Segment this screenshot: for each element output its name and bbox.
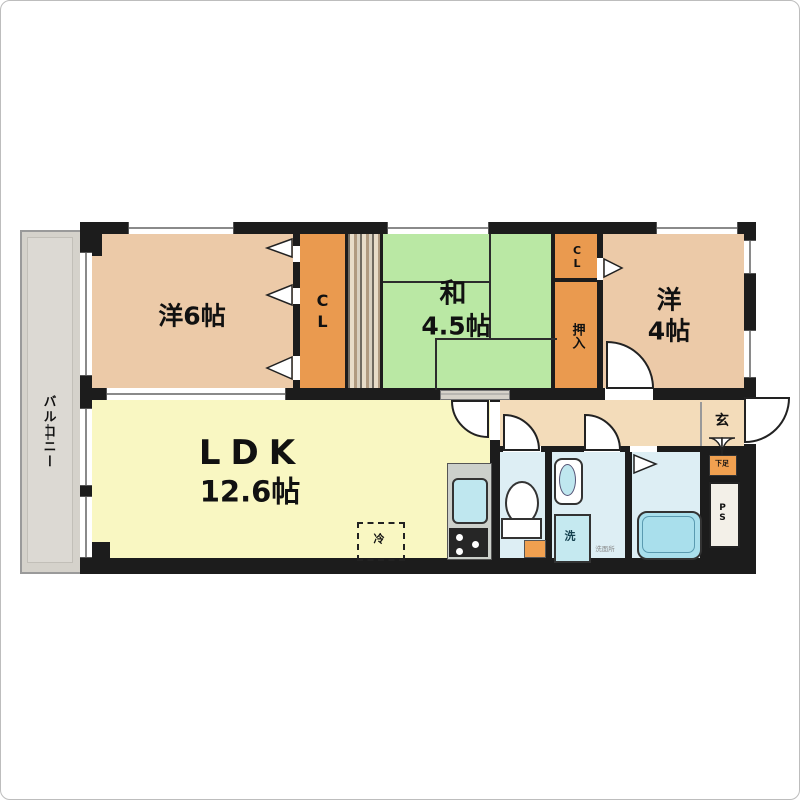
door-arc-toilet bbox=[502, 414, 540, 451]
kitchen-sink bbox=[452, 478, 488, 524]
door-arc-ldk bbox=[450, 400, 490, 438]
window-top-western4 bbox=[656, 222, 738, 234]
folding-door-closet1-c bbox=[266, 356, 293, 380]
sliding-window-western6-ldk bbox=[106, 388, 286, 400]
wall-japanese-oshiire bbox=[551, 234, 555, 388]
window-left-western6 bbox=[80, 252, 92, 376]
wall-toilet-washroom bbox=[545, 452, 552, 558]
stove-burner-1 bbox=[456, 534, 463, 541]
door-gap-ldk bbox=[490, 402, 500, 440]
door-gap-closet1-c bbox=[293, 356, 300, 380]
shoe-cabinet-door-arcs bbox=[708, 436, 736, 456]
oshiire-label: 押入 bbox=[571, 323, 584, 349]
stove-burner-2 bbox=[472, 541, 479, 548]
wall-washroom-bathroom bbox=[625, 452, 632, 558]
pipe-space-label: PS bbox=[718, 503, 727, 523]
ldk-label-2: 12.6帖 bbox=[200, 478, 301, 507]
window-top-japanese bbox=[387, 222, 489, 234]
refrigerator-label: 冷 bbox=[374, 534, 385, 545]
tatami-line-4 bbox=[435, 338, 437, 390]
wall-fusuma-right bbox=[380, 234, 383, 388]
door-arc-western4 bbox=[605, 341, 655, 389]
window-left-ldk-1 bbox=[80, 408, 92, 486]
folding-door-closet2 bbox=[603, 258, 624, 278]
folding-door-closet1-b bbox=[266, 284, 293, 306]
japanese-room-label-2: 4.5帖 bbox=[421, 314, 490, 339]
balcony-label: バルコニー bbox=[42, 395, 55, 470]
door-arc-entrance bbox=[744, 396, 792, 444]
western4-label-1: 洋 bbox=[656, 288, 681, 313]
fusuma-sliding-band bbox=[345, 234, 383, 388]
ldk-label-1: LDK bbox=[199, 436, 305, 470]
window-top-western6 bbox=[128, 222, 234, 234]
genkan-step-line bbox=[700, 402, 702, 446]
washbasin-bowl bbox=[559, 464, 576, 496]
door-gap-closet1-a bbox=[293, 246, 300, 262]
toilet-side-box bbox=[524, 540, 546, 558]
wall-fusuma-left bbox=[345, 234, 348, 388]
wall-closet2-oshiire bbox=[553, 278, 597, 282]
washroom-small-label: 洗面所 bbox=[595, 546, 615, 553]
bathtub-inner-line bbox=[642, 516, 695, 553]
stove bbox=[449, 528, 488, 557]
sliding-door-japanese-hall bbox=[440, 390, 510, 400]
folding-door-bathroom bbox=[633, 454, 658, 474]
door-gap-closet1-b bbox=[293, 288, 300, 304]
western4-label-2: 4帖 bbox=[648, 319, 690, 344]
japanese-room-label-1: 和 bbox=[440, 281, 467, 308]
door-gap-bathroom bbox=[630, 446, 657, 452]
window-right-western4-2 bbox=[744, 330, 756, 378]
window-left-ldk-2 bbox=[80, 496, 92, 558]
folding-door-closet1-a bbox=[266, 238, 293, 258]
stove-burner-3 bbox=[456, 548, 463, 555]
door-gap-western4 bbox=[605, 388, 653, 400]
door-arc-washroom bbox=[583, 414, 621, 451]
closet2-label: CL bbox=[572, 244, 583, 270]
pillar-top-left bbox=[92, 234, 102, 256]
western6-label: 洋6帖 bbox=[158, 304, 225, 329]
wall-bottom bbox=[80, 558, 756, 574]
tatami-line-1 bbox=[383, 281, 491, 283]
shoe-cabinet-label: 下足 bbox=[715, 461, 729, 468]
toilet-tank bbox=[501, 518, 542, 539]
window-right-western4-1 bbox=[744, 240, 756, 274]
genkan-label: 玄 bbox=[715, 414, 729, 428]
closet1-label: CL bbox=[314, 291, 330, 333]
washer-pan-label: 洗 bbox=[565, 531, 576, 542]
floorplan-screenshot: バルコニー 洋6帖 CL 和 4.5帖 CL 押入 洋 4帖 LDK 12.6帖… bbox=[0, 0, 800, 800]
